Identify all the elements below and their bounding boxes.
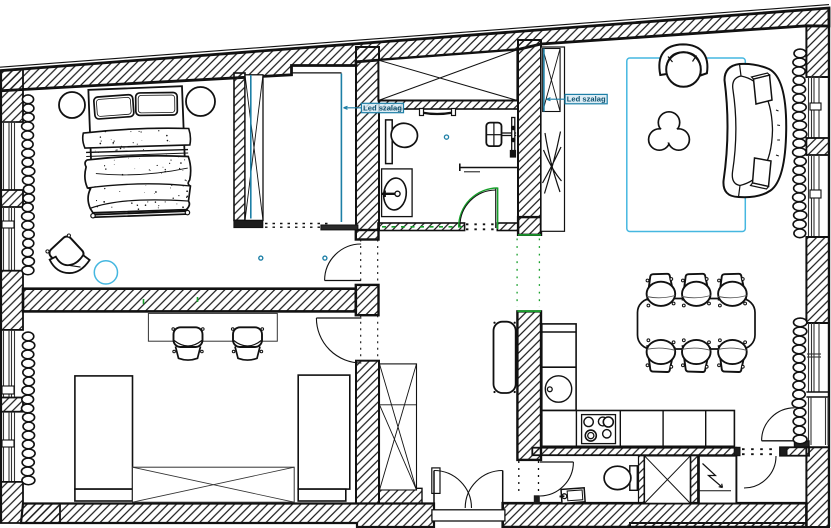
svg-text:Led szalag: Led szalag [363,104,402,113]
svg-text:Led szalag: Led szalag [567,95,606,104]
